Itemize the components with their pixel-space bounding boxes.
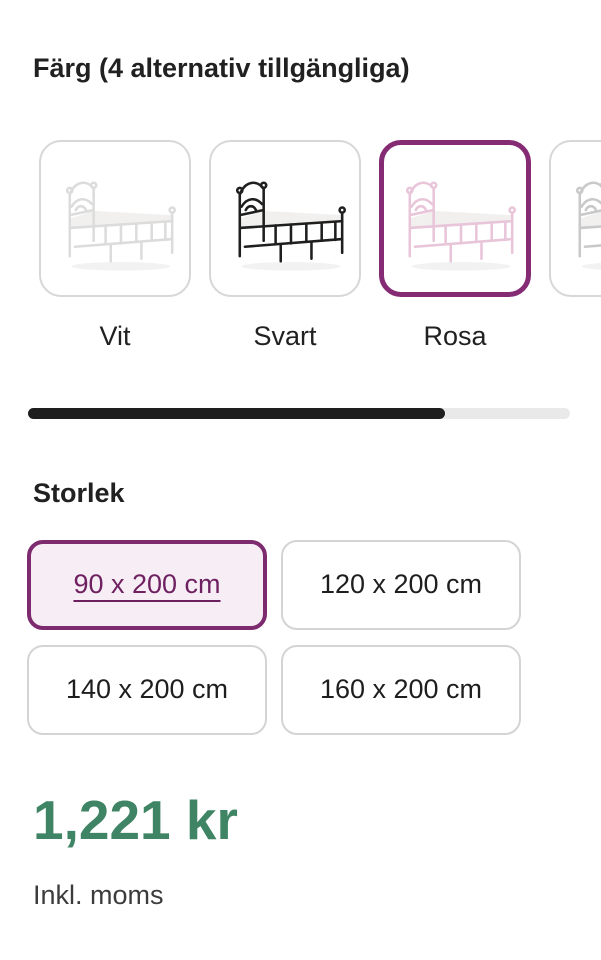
color-label-rosa: Rosa	[379, 321, 531, 352]
color-label-vit: Vit	[39, 321, 191, 352]
color-swatch-svart[interactable]	[209, 140, 361, 297]
bed-frame-white-icon	[51, 165, 179, 273]
size-option-120x200[interactable]: 120 x 200 cm	[281, 540, 521, 630]
size-option-90x200[interactable]: 90 x 200 cm	[27, 540, 267, 630]
color-label-svart: Svart	[209, 321, 361, 352]
color-swatch-partial[interactable]	[549, 140, 601, 297]
color-section-title: Färg (4 alternativ tillgängliga)	[33, 52, 601, 84]
carousel-scrollbar[interactable]	[28, 408, 570, 419]
color-swatch-carousel[interactable]	[0, 140, 601, 297]
color-swatch-rosa[interactable]	[379, 140, 531, 297]
bed-frame-black-icon	[221, 165, 349, 273]
color-swatch-vit[interactable]	[39, 140, 191, 297]
size-options-grid: 90 x 200 cm 120 x 200 cm 140 x 200 cm 16…	[27, 540, 521, 735]
size-section-title: Storlek	[33, 477, 601, 509]
bed-frame-partial-icon	[561, 165, 601, 273]
product-options-panel: Färg (4 alternativ tillgängliga) Vit Sva…	[0, 0, 601, 911]
carousel-scrollbar-thumb[interactable]	[28, 408, 445, 419]
color-swatch-labels: Vit Svart Rosa	[0, 321, 601, 352]
size-option-140x200[interactable]: 140 x 200 cm	[27, 645, 267, 735]
bed-frame-pink-icon	[391, 165, 519, 273]
vat-note: Inkl. moms	[33, 880, 601, 911]
product-price: 1,221 kr	[33, 793, 601, 848]
size-option-160x200[interactable]: 160 x 200 cm	[281, 645, 521, 735]
